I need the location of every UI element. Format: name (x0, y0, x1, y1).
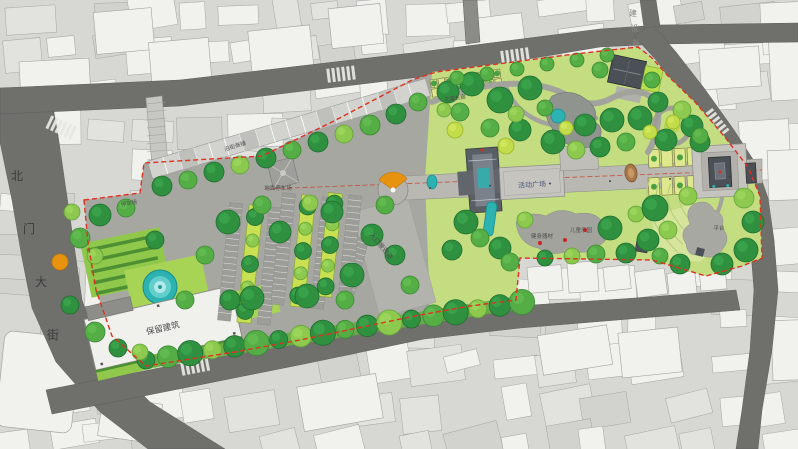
context-building (618, 327, 682, 378)
tree-highlight (219, 213, 230, 224)
tree-highlight (619, 135, 627, 143)
tree-highlight (181, 173, 189, 181)
water-feature (477, 168, 490, 189)
context-building (720, 310, 747, 328)
round-pond (551, 109, 565, 123)
tree-highlight (259, 151, 268, 160)
context-building (501, 383, 532, 420)
tree-highlight (155, 179, 164, 188)
tree-highlight (645, 198, 657, 210)
site-plan-drawing: 北门大街 建设巷 保留建筑 入口景观道 活动广场 停车场 地面停车场 沿街商铺 … (0, 0, 798, 449)
tree-highlight (338, 293, 346, 301)
tree-highlight (66, 206, 73, 213)
label-fitness-equipment: 健身器材 (531, 232, 554, 240)
tree-highlight (88, 325, 97, 334)
tree-highlight (343, 266, 354, 277)
tree-highlight (594, 64, 601, 71)
tree-highlight (646, 74, 653, 81)
tree-highlight (148, 233, 156, 241)
tree-highlight (645, 127, 651, 133)
tree-highlight (675, 103, 683, 111)
lamp (609, 180, 611, 182)
label-children-playground: 儿童乐园 (570, 226, 593, 234)
orange-tree (52, 254, 68, 270)
tree-highlight (463, 75, 474, 86)
tree-highlight (654, 250, 661, 257)
context-building (148, 37, 211, 82)
plan-graphic (661, 177, 673, 196)
tree-highlight (134, 346, 141, 353)
tree-highlight (483, 121, 491, 129)
tree-highlight (572, 55, 578, 61)
plan-graphic (391, 188, 396, 193)
tree-highlight (206, 343, 214, 351)
tree-highlight (223, 293, 232, 302)
tree-highlight (411, 95, 419, 103)
tree-highlight (694, 130, 701, 137)
tree-highlight (603, 111, 614, 122)
tree-highlight (337, 127, 345, 135)
tree-highlight (440, 84, 450, 94)
tree-highlight (510, 108, 517, 115)
tree-highlight (544, 133, 555, 144)
tree-highlight (737, 241, 748, 252)
tree-highlight (63, 298, 71, 306)
tree-highlight (473, 231, 481, 239)
tree-highlight (247, 333, 258, 344)
context-building (567, 261, 599, 293)
tree-highlight (631, 109, 642, 120)
tree-highlight (111, 341, 119, 349)
tree-highlight (73, 231, 82, 240)
axis-fountain (427, 175, 437, 189)
context-building (406, 4, 450, 37)
tree-highlight (593, 140, 602, 149)
play-equipment (563, 238, 567, 242)
tree-highlight (272, 333, 280, 341)
tree-highlight (651, 95, 660, 104)
tree-highlight (457, 213, 468, 224)
tree-highlight (389, 107, 398, 116)
tree-highlight (681, 189, 689, 197)
tree-highlight (661, 223, 669, 231)
lamp (669, 178, 671, 180)
tree-highlight (449, 124, 456, 131)
plan-graphic (661, 149, 673, 168)
tree-highlight (233, 158, 241, 166)
context-building (699, 46, 762, 90)
tree-highlight (745, 214, 755, 224)
tree-highlight (640, 232, 650, 242)
tree-highlight (378, 198, 386, 206)
play-equipment (538, 241, 542, 245)
tree-highlight (519, 214, 526, 221)
tree-highlight (684, 118, 694, 128)
tree-highlight (338, 323, 346, 331)
tree-highlight (226, 338, 236, 348)
tree-highlight (272, 224, 282, 234)
tree-highlight (439, 105, 445, 111)
context-building (400, 395, 442, 435)
tree-highlight (512, 122, 522, 132)
tree-highlight (298, 287, 309, 298)
tree-highlight (255, 198, 263, 206)
context-building (0, 429, 32, 449)
label-platform: 平台 (713, 224, 725, 232)
tree-highlight (619, 246, 628, 255)
tree-highlight (513, 293, 524, 304)
tree-highlight (601, 219, 612, 230)
plan-graphic (158, 285, 162, 289)
tree-highlight (658, 132, 668, 142)
tree-highlight (521, 79, 532, 90)
tree-highlight (512, 64, 518, 70)
context-building (328, 3, 384, 48)
context-building (87, 119, 125, 142)
label-surface-parking: 地面停车场 (264, 184, 292, 192)
context-building (179, 2, 206, 30)
tree-highlight (490, 90, 502, 102)
tree-highlight (160, 348, 170, 358)
tree-highlight (492, 240, 502, 250)
context-building (47, 35, 76, 57)
context-building (578, 426, 606, 449)
tree-highlight (503, 255, 511, 263)
tree-highlight (566, 250, 573, 257)
lamp (729, 176, 731, 178)
context-building (218, 5, 259, 25)
tree-highlight (198, 248, 206, 256)
tree-highlight (539, 102, 546, 109)
tree-highlight (92, 207, 102, 217)
tree-highlight (313, 323, 324, 334)
tree-highlight (577, 117, 587, 127)
tree-highlight (311, 135, 320, 144)
tree-highlight (561, 123, 567, 129)
tree-highlight (668, 117, 674, 123)
tree-highlight (425, 308, 435, 318)
context-building (93, 8, 154, 55)
tree-highlight (569, 143, 577, 151)
context-building (634, 268, 667, 298)
road (463, 0, 480, 44)
tree-highlight (452, 73, 458, 79)
lamp (549, 182, 551, 184)
tree-highlight (403, 278, 411, 286)
tree-highlight (181, 344, 192, 355)
tree-highlight (363, 118, 372, 127)
tree-highlight (589, 247, 597, 255)
tree-highlight (293, 328, 303, 338)
tree-highlight (243, 289, 254, 300)
tree-highlight (405, 312, 413, 320)
tree-highlight (453, 105, 461, 113)
context-building (771, 319, 798, 380)
tree-highlight (304, 197, 311, 204)
tree-highlight (324, 204, 334, 214)
tree-highlight (673, 257, 682, 266)
tree-highlight (542, 59, 548, 65)
context-building (767, 149, 798, 200)
tree-highlight (445, 243, 454, 252)
tree-highlight (630, 208, 637, 215)
context-building (603, 265, 631, 292)
lamp (489, 185, 491, 187)
context-building (586, 0, 615, 22)
context-building (527, 265, 563, 294)
tree-highlight (178, 293, 186, 301)
tree-highlight (285, 143, 293, 151)
tree-highlight (207, 165, 216, 174)
tree-highlight (737, 191, 746, 200)
tree-highlight (500, 140, 507, 147)
tree-highlight (482, 69, 488, 75)
context-building (5, 5, 57, 36)
master-plan-canvas: 北门大街 建设巷 保留建筑 入口景观道 活动广场 停车场 地面停车场 沿街商铺 … (0, 0, 798, 449)
context-building (179, 388, 214, 423)
tree-highlight (714, 256, 724, 266)
context-building (768, 39, 798, 101)
lamp (429, 187, 431, 189)
